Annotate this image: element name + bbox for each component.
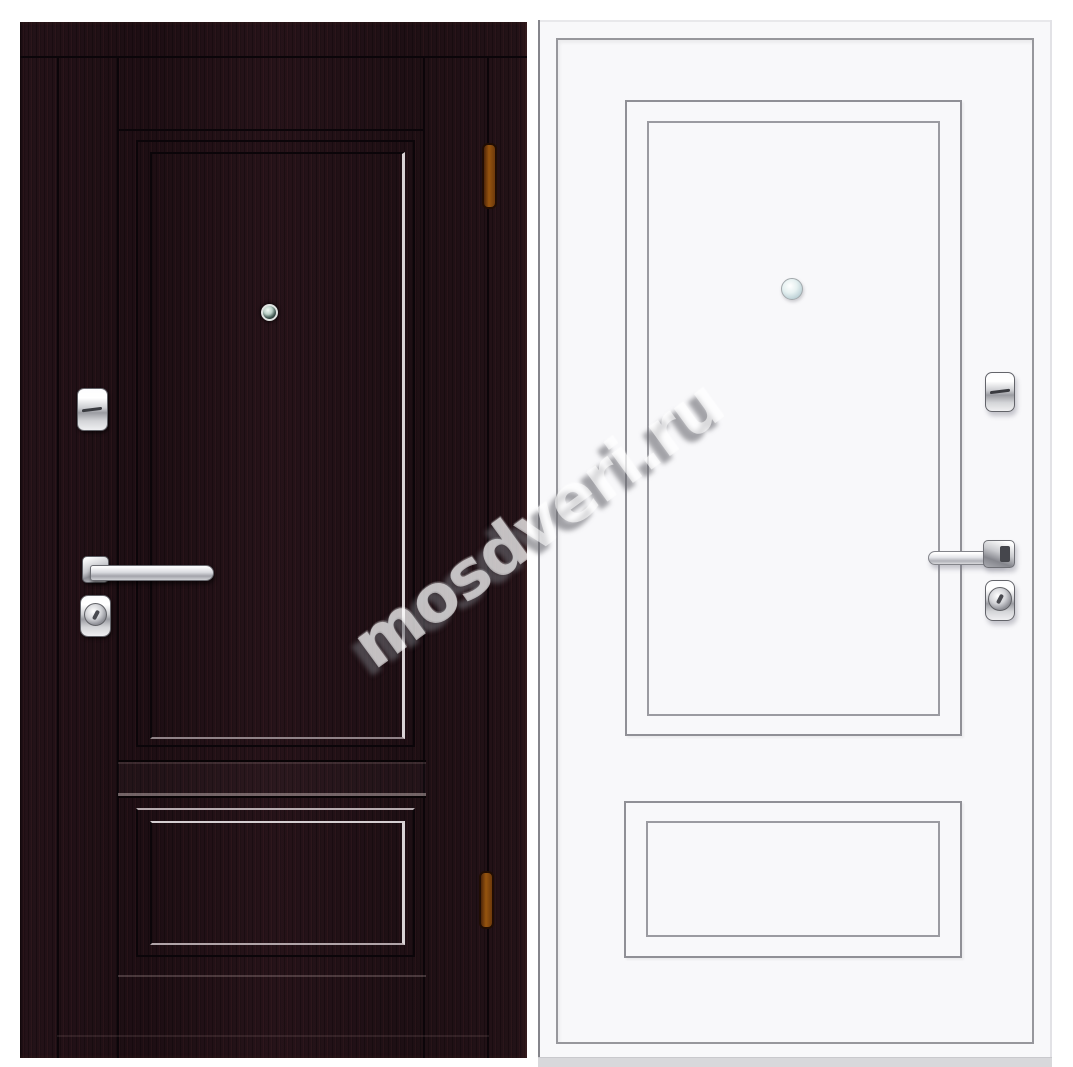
- upper-panel-molding-inner: [150, 152, 405, 739]
- door-exterior-wenge: [20, 22, 527, 1058]
- door-interior-white: [538, 20, 1052, 1067]
- cylinder-lock-icon: [80, 595, 111, 637]
- door-product-photo: mosdveri.ru: [0, 0, 1073, 1067]
- casing-left-line: [57, 56, 59, 1058]
- upper-panel-molding-inner: [647, 121, 940, 716]
- top-rail-line: [118, 129, 424, 131]
- stile-left-line: [117, 56, 119, 1058]
- lower-panel-molding-inner: [646, 821, 940, 937]
- lever-handle-icon: [90, 565, 214, 581]
- lock-cylinder-icon: [84, 603, 107, 626]
- thumbturn-escutcheon-icon: [985, 372, 1015, 412]
- lock-cylinder-icon: [988, 587, 1012, 611]
- door-right-edge: [1050, 20, 1052, 1067]
- door-bottom-edge-line: [57, 1035, 489, 1037]
- hinge-top-icon: [482, 143, 497, 209]
- lower-panel-molding-inner: [150, 821, 405, 945]
- cylinder-lock-icon: [985, 580, 1015, 621]
- stile-right-line: [423, 56, 425, 1058]
- door-top-edge: [538, 20, 1052, 22]
- door-bottom-edge: [538, 1057, 1052, 1067]
- deadbolt-escutcheon-icon: [77, 388, 108, 431]
- middle-rail: [118, 760, 426, 798]
- frame-head-line: [20, 56, 527, 58]
- door-left-edge: [538, 20, 540, 1067]
- bottom-rail-line: [118, 975, 426, 977]
- peephole-icon: [261, 304, 278, 321]
- hinge-bottom-icon: [479, 871, 494, 929]
- handle-rose-icon: [983, 540, 1015, 568]
- peephole-icon: [781, 278, 803, 300]
